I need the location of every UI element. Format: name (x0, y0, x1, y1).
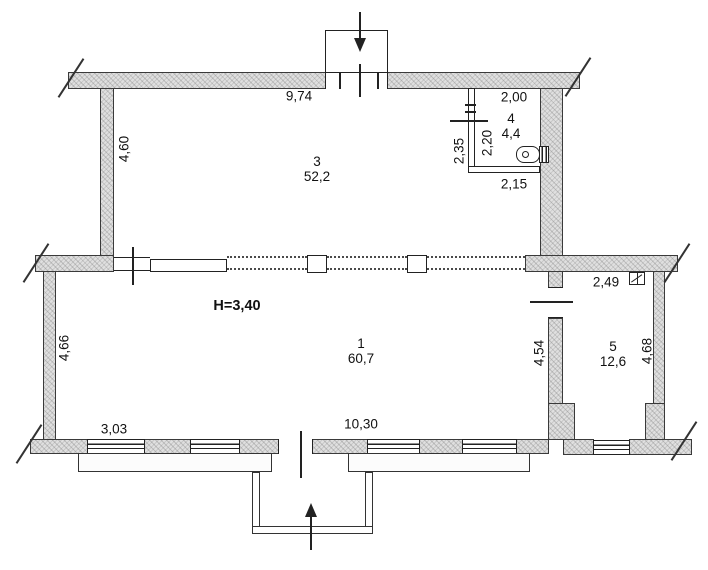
wall-left-lower (43, 271, 56, 440)
dimension-top-width: 9,74 (286, 89, 312, 104)
room5-door-tick (530, 301, 573, 303)
room4-jamb-mark-2 (465, 111, 476, 113)
column-1 (307, 255, 327, 273)
arrow-down-icon (354, 38, 366, 52)
wall-bottom-seg3 (239, 439, 279, 454)
wall-middle-left (35, 255, 114, 272)
dimension-room4-inner: 2,20 (480, 130, 495, 156)
wall-divider-top (548, 271, 563, 288)
dimension-room4-top: 2,00 (501, 90, 527, 105)
window-1 (87, 439, 145, 454)
entrance-arrow-bottom (310, 515, 312, 550)
wall-right-room5 (653, 271, 665, 404)
wall-bottom-seg5 (419, 439, 463, 454)
dimension-room4-bottom: 2,15 (501, 177, 527, 192)
room-3-area: 52,2 (304, 169, 330, 184)
vent-grille-icon (629, 272, 645, 285)
floor-plan: 9,74 4,60 2,00 2,20 2,35 2,15 H=3,40 4,6… (0, 0, 708, 570)
entrance-arrow-top (359, 12, 361, 40)
wall-bottom-seg1 (30, 439, 88, 454)
dimension-room1-left: 4,66 (57, 335, 72, 361)
dimension-room3-height: 4,60 (117, 136, 132, 162)
wall-middle-right (525, 255, 678, 272)
room-label-3: 3 52,2 (304, 154, 330, 184)
window-2 (190, 439, 240, 454)
dimension-bottom-main: 10,30 (344, 417, 378, 432)
room-label-1: 1 60,7 (348, 336, 374, 366)
door-jamb-top-left (339, 72, 341, 89)
room-3-number: 3 (313, 154, 321, 169)
window-3 (367, 439, 420, 454)
partition-outline (150, 259, 227, 272)
room4-jamb-mark-1 (465, 104, 476, 106)
height-note: H=3,40 (213, 298, 260, 314)
dimension-room5-right: 4,68 (640, 338, 655, 364)
wall-left-upper (100, 88, 114, 256)
dimension-room5-top: 2,49 (593, 275, 619, 290)
dashed-boundary-1 (227, 256, 307, 258)
door-opening-top (325, 72, 388, 89)
wall-room4-bottom (468, 166, 540, 173)
room-4-number: 4 (507, 111, 515, 126)
door-opening-room5 (548, 287, 563, 318)
wall-right-room5-pilaster (645, 403, 665, 440)
wall-right-upper (540, 88, 563, 256)
dashed-boundary-4 (227, 268, 307, 270)
column-2 (407, 255, 427, 273)
dimension-room1-right: 4,54 (532, 340, 547, 366)
room-4-area: 4,4 (502, 126, 521, 141)
vestibule-wall-right (365, 472, 373, 534)
window-4 (462, 439, 517, 454)
room-5-area: 12,6 (600, 354, 626, 369)
porch-right (348, 453, 530, 472)
vestibule-wall-bottom (252, 526, 373, 534)
dashed-boundary-5 (327, 268, 407, 270)
room-1-area: 60,7 (348, 351, 374, 366)
dimension-bottom-left: 3,03 (101, 422, 127, 437)
window-5-room5 (593, 440, 630, 455)
dashed-boundary-6 (427, 268, 525, 270)
door-axis-top (359, 64, 361, 97)
room-label-5: 5 12,6 (600, 339, 626, 369)
door-axis-bottom (300, 431, 302, 478)
porch-left (78, 453, 272, 472)
wall-divider-bottom (548, 403, 575, 440)
wall-room4-left (468, 88, 475, 173)
room4-dim-tick (450, 120, 488, 122)
room-label-4: 4 4,4 (502, 111, 521, 141)
wall-bottom-room5-seg1 (563, 439, 594, 455)
middle-opening-tick (132, 247, 134, 285)
wall-divider-mid (548, 318, 563, 404)
dashed-boundary-3 (427, 256, 525, 258)
wall-bottom-seg4 (312, 439, 368, 454)
door-opening-main (278, 439, 313, 454)
wall-bottom-seg6 (516, 439, 549, 454)
wall-bottom-seg2 (144, 439, 191, 454)
vestibule-wall-left (252, 472, 260, 534)
door-jamb-top-right (377, 72, 379, 89)
wall-top (68, 72, 580, 89)
dashed-boundary-2 (327, 256, 407, 258)
dimension-room4-left: 2,35 (452, 138, 467, 164)
room-5-number: 5 (609, 339, 617, 354)
room-1-number: 1 (357, 336, 365, 351)
